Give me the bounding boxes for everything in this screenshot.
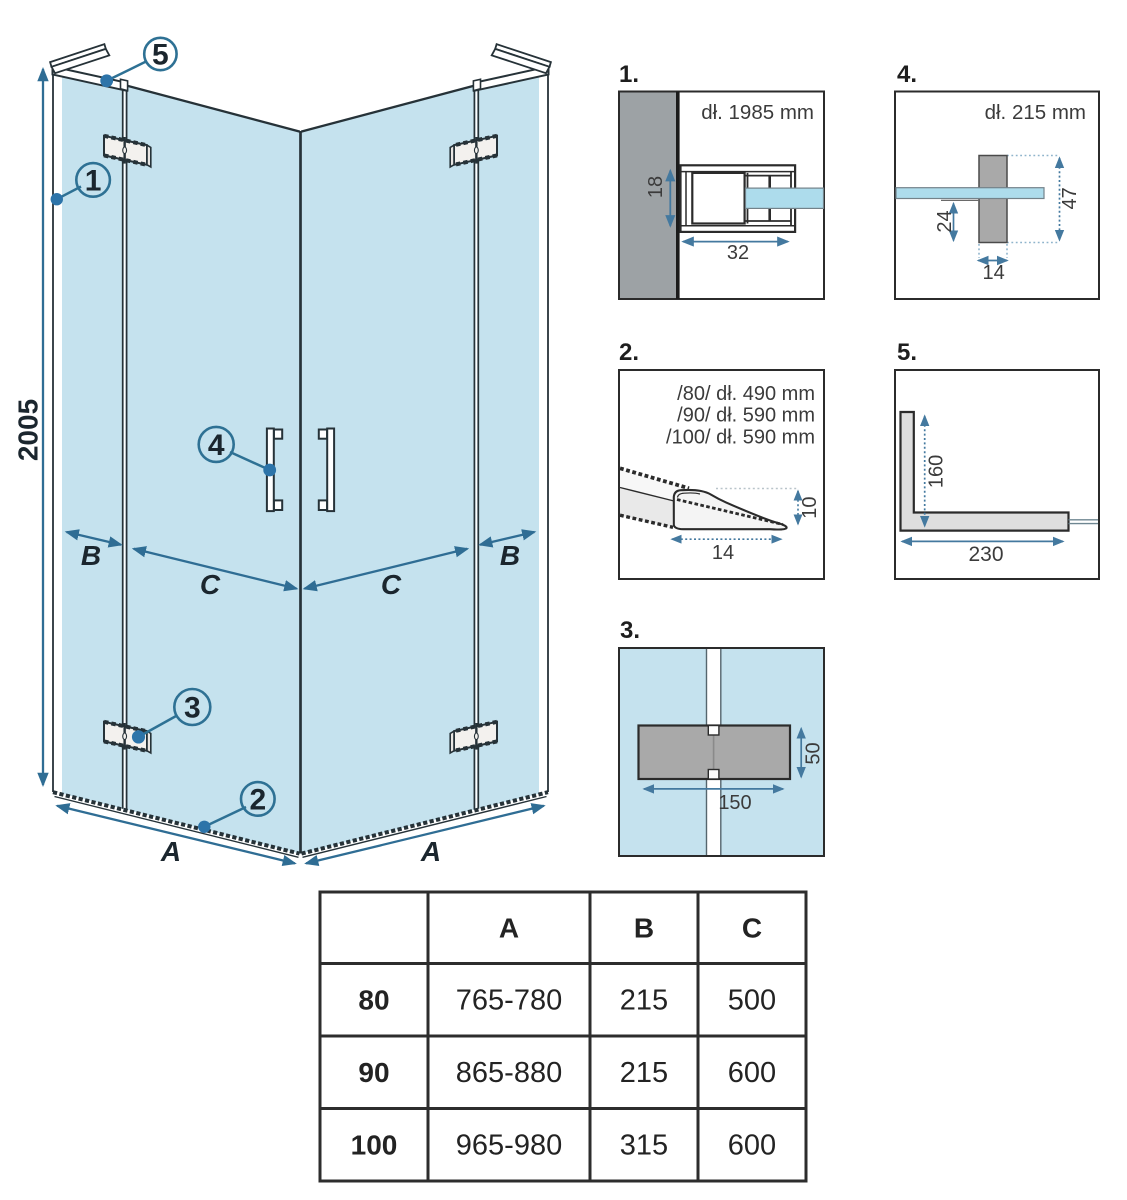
svg-text:5: 5 [152,39,169,72]
svg-text:1: 1 [85,164,102,197]
svg-text:965-980: 965-980 [456,1130,562,1162]
svg-text:/100/ dł. 590 mm: /100/ dł. 590 mm [666,427,815,449]
svg-text:10: 10 [799,496,821,518]
svg-text:3: 3 [184,692,201,725]
svg-text:47: 47 [1059,187,1081,209]
svg-text:dł. 1985 mm: dł. 1985 mm [701,101,814,124]
svg-text:B: B [500,540,520,571]
svg-text:4: 4 [208,429,225,462]
svg-text:14: 14 [712,542,734,564]
svg-text:A: A [499,913,519,944]
svg-text:160: 160 [926,455,948,488]
svg-text:865-880: 865-880 [456,1057,562,1089]
svg-text:100: 100 [351,1130,398,1161]
svg-text:50: 50 [803,742,825,764]
svg-text:1.: 1. [619,61,639,88]
svg-text:600: 600 [728,1130,776,1162]
svg-text:3.: 3. [620,617,640,644]
svg-text:315: 315 [620,1130,668,1162]
svg-text:C: C [742,913,762,944]
svg-text:B: B [81,540,101,571]
svg-text:2.: 2. [619,339,639,366]
svg-text:230: 230 [968,543,1003,566]
svg-text:/80/ dł. 490 mm: /80/ dł. 490 mm [677,383,815,405]
svg-text:90: 90 [358,1057,389,1088]
svg-text:C: C [381,569,402,600]
svg-text:18: 18 [645,176,667,198]
svg-text:2: 2 [249,783,266,816]
svg-text:dł. 215 mm: dł. 215 mm [985,101,1086,124]
svg-text:150: 150 [718,792,751,814]
svg-text:24: 24 [934,210,956,232]
svg-text:600: 600 [728,1057,776,1089]
svg-text:215: 215 [620,1057,668,1089]
svg-text:2005: 2005 [13,399,44,461]
svg-text:/90/ dł. 590 mm: /90/ dł. 590 mm [677,405,815,427]
svg-text:A: A [160,836,181,867]
svg-text:C: C [200,569,221,600]
svg-text:215: 215 [620,985,668,1017]
svg-text:32: 32 [727,242,749,264]
svg-text:14: 14 [982,262,1004,284]
svg-text:5.: 5. [897,339,917,366]
svg-text:500: 500 [728,985,776,1017]
svg-text:B: B [634,913,654,944]
svg-text:765-780: 765-780 [456,985,562,1017]
svg-text:80: 80 [358,985,389,1016]
svg-text:A: A [420,836,441,867]
svg-text:4.: 4. [897,61,917,88]
